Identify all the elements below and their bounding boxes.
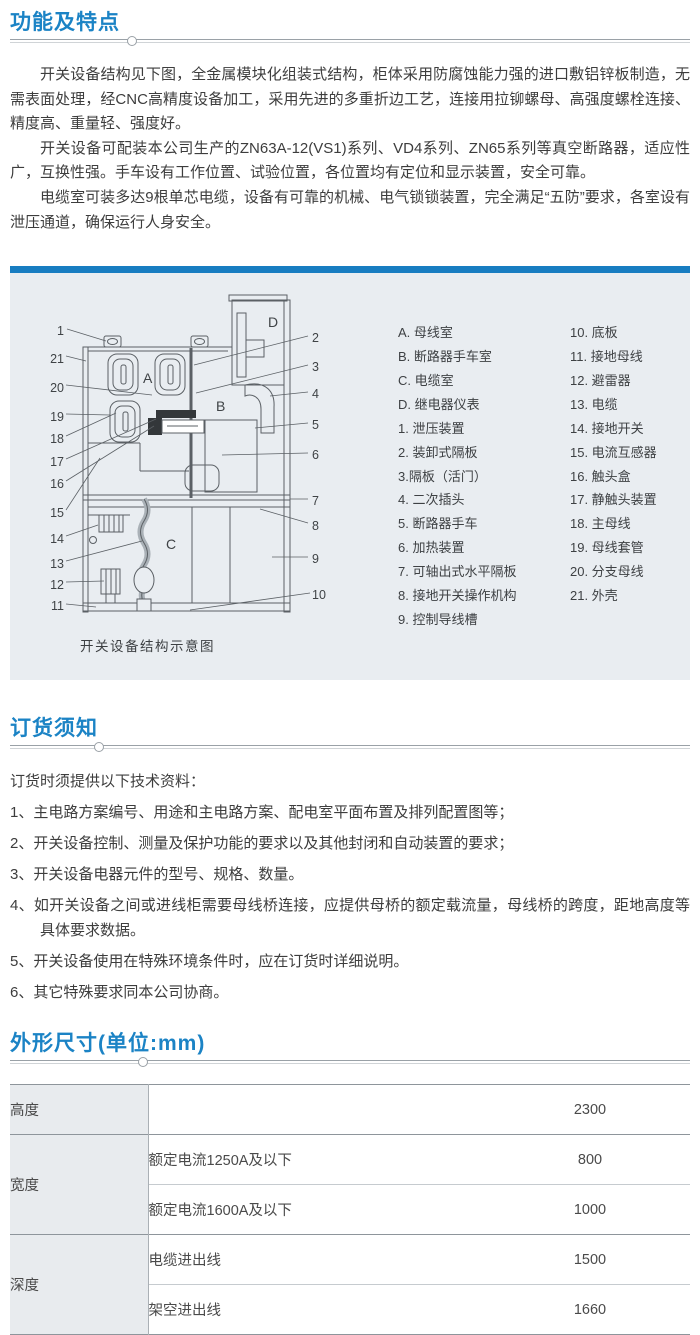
ordering-item: 1、主电路方案编号、用途和主电路方案、配电室平面布置及排列配置图等； [10,800,690,825]
dimension-value: 1500 [490,1235,690,1285]
callout-number: 6 [312,448,319,462]
ordering-item: 6、其它特殊要求同本公司协商。 [10,980,690,1005]
arrester [101,569,120,603]
legend-item: 13. 电缆 [570,393,657,417]
legend-item: 14. 接地开关 [570,417,657,441]
dimension-value: 1000 [490,1185,690,1235]
table-row: 宽度 额定电流1250A及以下 800 [10,1135,690,1185]
legend-item: 8. 接地开关操作机构 [398,584,516,608]
dimensions-table: 高度 2300 宽度 额定电流1250A及以下 800 额定电流1600A及以下… [10,1084,690,1335]
section-title-dimensions: 外形尺寸(单位:mm) [10,1029,690,1059]
section-ordering: 订货须知 订货时须提供以下技术资料： 1、主电路方案编号、用途和主电路方案、配电… [10,714,690,1005]
feature-paragraphs: 开关设备结构见下图，全金属模块化组装式结构，柜体采用防腐蚀能力强的进口敷铝锌板制… [10,63,690,235]
legend-item: 9. 控制导线槽 [398,608,516,632]
structure-diagram-panel: A B C D 1 21 20 19 18 17 16 15 14 13 [10,266,690,680]
legend-item: 2. 装卸式隔板 [398,441,516,465]
callout-number: 8 [312,519,319,533]
section-dimensions: 外形尺寸(单位:mm) 高度 2300 宽度 额定电流1250A及以下 800 … [10,1029,690,1335]
legend-item: 15. 电流互感器 [570,441,657,465]
callout-leader-lines [66,329,310,610]
compartment-letter-A: A [143,370,153,386]
callout-number: 14 [50,532,64,546]
callout-numbers-right: 2 3 4 5 6 7 8 9 10 [312,331,326,602]
panel-body: A B C D 1 21 20 19 18 17 16 15 14 13 [10,273,690,680]
compartment-letter-B: B [216,398,225,414]
legend-item: D. 继电器仪表 [398,393,516,417]
section-features: 功能及特点 开关设备结构见下图，全金属模块化组装式结构，柜体采用防腐蚀能力强的进… [10,0,690,235]
legend-item: 16. 触头盒 [570,465,657,489]
callout-number: 17 [50,455,64,469]
dimension-value: 800 [490,1135,690,1185]
feature-paragraph: 开关设备可配装本公司生产的ZN63A-12(VS1)系列、VD4系列、ZN65系… [10,137,690,186]
legend-item: 3.隔板（活门） [398,465,516,489]
legend-item: 20. 分支母线 [570,560,657,584]
diagram-legend-right-column: 10. 底板 11. 接地母线 12. 避雷器 13. 电缆 14. 接地开关 … [570,321,657,608]
callout-number: 2 [312,331,319,345]
catalog-page: 功能及特点 开关设备结构见下图，全金属模块化组装式结构，柜体采用防腐蚀能力强的进… [10,0,690,1335]
legend-item: A. 母线室 [398,321,516,345]
dimension-group-label: 深度 [10,1235,148,1335]
legend-item: 4. 二次插头 [398,488,516,512]
dimension-condition: 额定电流1250A及以下 [148,1135,490,1185]
table-row: 深度 电缆进出线 1500 [10,1235,690,1285]
callout-number: 12 [50,578,64,592]
legend-item: 19. 母线套管 [570,536,657,560]
compartment-letter-C: C [166,536,176,552]
section-rule [10,39,690,43]
callout-number: 4 [312,387,319,401]
callout-number: 3 [312,360,319,374]
callout-number: 19 [50,410,64,424]
rule-ring-ornament [138,1057,148,1067]
callout-number: 13 [50,557,64,571]
ordering-item-list: 1、主电路方案编号、用途和主电路方案、配电室平面布置及排列配置图等； 2、开关设… [10,800,690,1005]
rule-ring-ornament [127,36,137,46]
dimension-condition: 架空进出线 [148,1285,490,1335]
partition-and-contact [148,348,204,498]
ordering-item: 2、开关设备控制、测量及保护功能的要求以及其他封闭和自动装置的要求； [10,831,690,856]
legend-item: 21. 外壳 [570,584,657,608]
callout-number: 10 [312,588,326,602]
diagram-legend-left-column: A. 母线室 B. 断路器手车室 C. 电缆室 D. 继电器仪表 1. 泄压装置… [398,321,516,632]
diagram-caption: 开关设备结构示意图 [80,635,215,655]
legend-item: 6. 加热装置 [398,536,516,560]
ordering-intro: 订货时须提供以下技术资料： [10,769,690,794]
relay-compartment [229,295,287,385]
cabinet-shell [83,300,290,612]
callout-number: 20 [50,381,64,395]
legend-item: B. 断路器手车室 [398,345,516,369]
ordering-item: 4、如开关设备之间或进线柜需要母线桥连接，应提供母桥的额定载流量，母线桥的跨度，… [10,893,690,943]
callout-number: 21 [50,352,64,366]
cable-duct [245,384,274,433]
feature-paragraph: 电缆室可装多达9根单芯电缆，设备有可靠的机械、电气锁锁装置，完全满足“五防”要求… [10,186,690,235]
rule-ring-ornament [94,742,104,752]
legend-item: 18. 主母线 [570,512,657,536]
dimension-condition: 额定电流1600A及以下 [148,1185,490,1235]
dimension-value: 2300 [490,1085,690,1135]
legend-item: 12. 避雷器 [570,369,657,393]
legend-item: 10. 底板 [570,321,657,345]
dimension-group-label: 高度 [10,1085,148,1135]
callout-number: 16 [50,477,64,491]
legend-item: C. 电缆室 [398,369,516,393]
panel-top-bar [10,266,690,273]
legend-item: 5. 断路器手车 [398,512,516,536]
switchgear-structure-drawing: A B C D 1 21 20 19 18 17 16 15 14 13 [40,293,340,638]
callout-number: 7 [312,494,319,508]
callout-number: 18 [50,432,64,446]
ordering-item: 3、开关设备电器元件的型号、规格、数量。 [10,862,690,887]
feature-paragraph: 开关设备结构见下图，全金属模块化组装式结构，柜体采用防腐蚀能力强的进口敷铝锌板制… [10,63,690,137]
legend-item: 11. 接地母线 [570,345,657,369]
callout-number: 15 [50,506,64,520]
section-title-features: 功能及特点 [10,8,690,38]
ordering-item: 5、开关设备使用在特殊环境条件时，应在订货时详细说明。 [10,949,690,974]
current-transformer [90,515,124,544]
compartment-letter-D: D [268,314,278,330]
dimension-group-label: 宽度 [10,1135,148,1235]
callout-number: 11 [51,599,64,613]
dimension-condition [148,1085,490,1135]
section-rule [10,1060,690,1064]
horizontal-partitions [83,443,290,507]
legend-item: 1. 泄压装置 [398,417,516,441]
dimension-condition: 电缆进出线 [148,1235,490,1285]
section-title-ordering: 订货须知 [10,714,690,744]
legend-item: 17. 静触头装置 [570,488,657,512]
table-row: 高度 2300 [10,1085,690,1135]
callout-numbers-left: 1 21 20 19 18 17 16 15 14 13 12 11 [50,324,64,613]
cable [134,499,154,611]
legend-item: 7. 可轴出式水平隔板 [398,560,516,584]
callout-number: 1 [57,324,64,338]
callout-number: 9 [312,552,319,566]
callout-number: 5 [312,418,319,432]
dimension-value: 1660 [490,1285,690,1335]
section-rule [10,745,690,749]
